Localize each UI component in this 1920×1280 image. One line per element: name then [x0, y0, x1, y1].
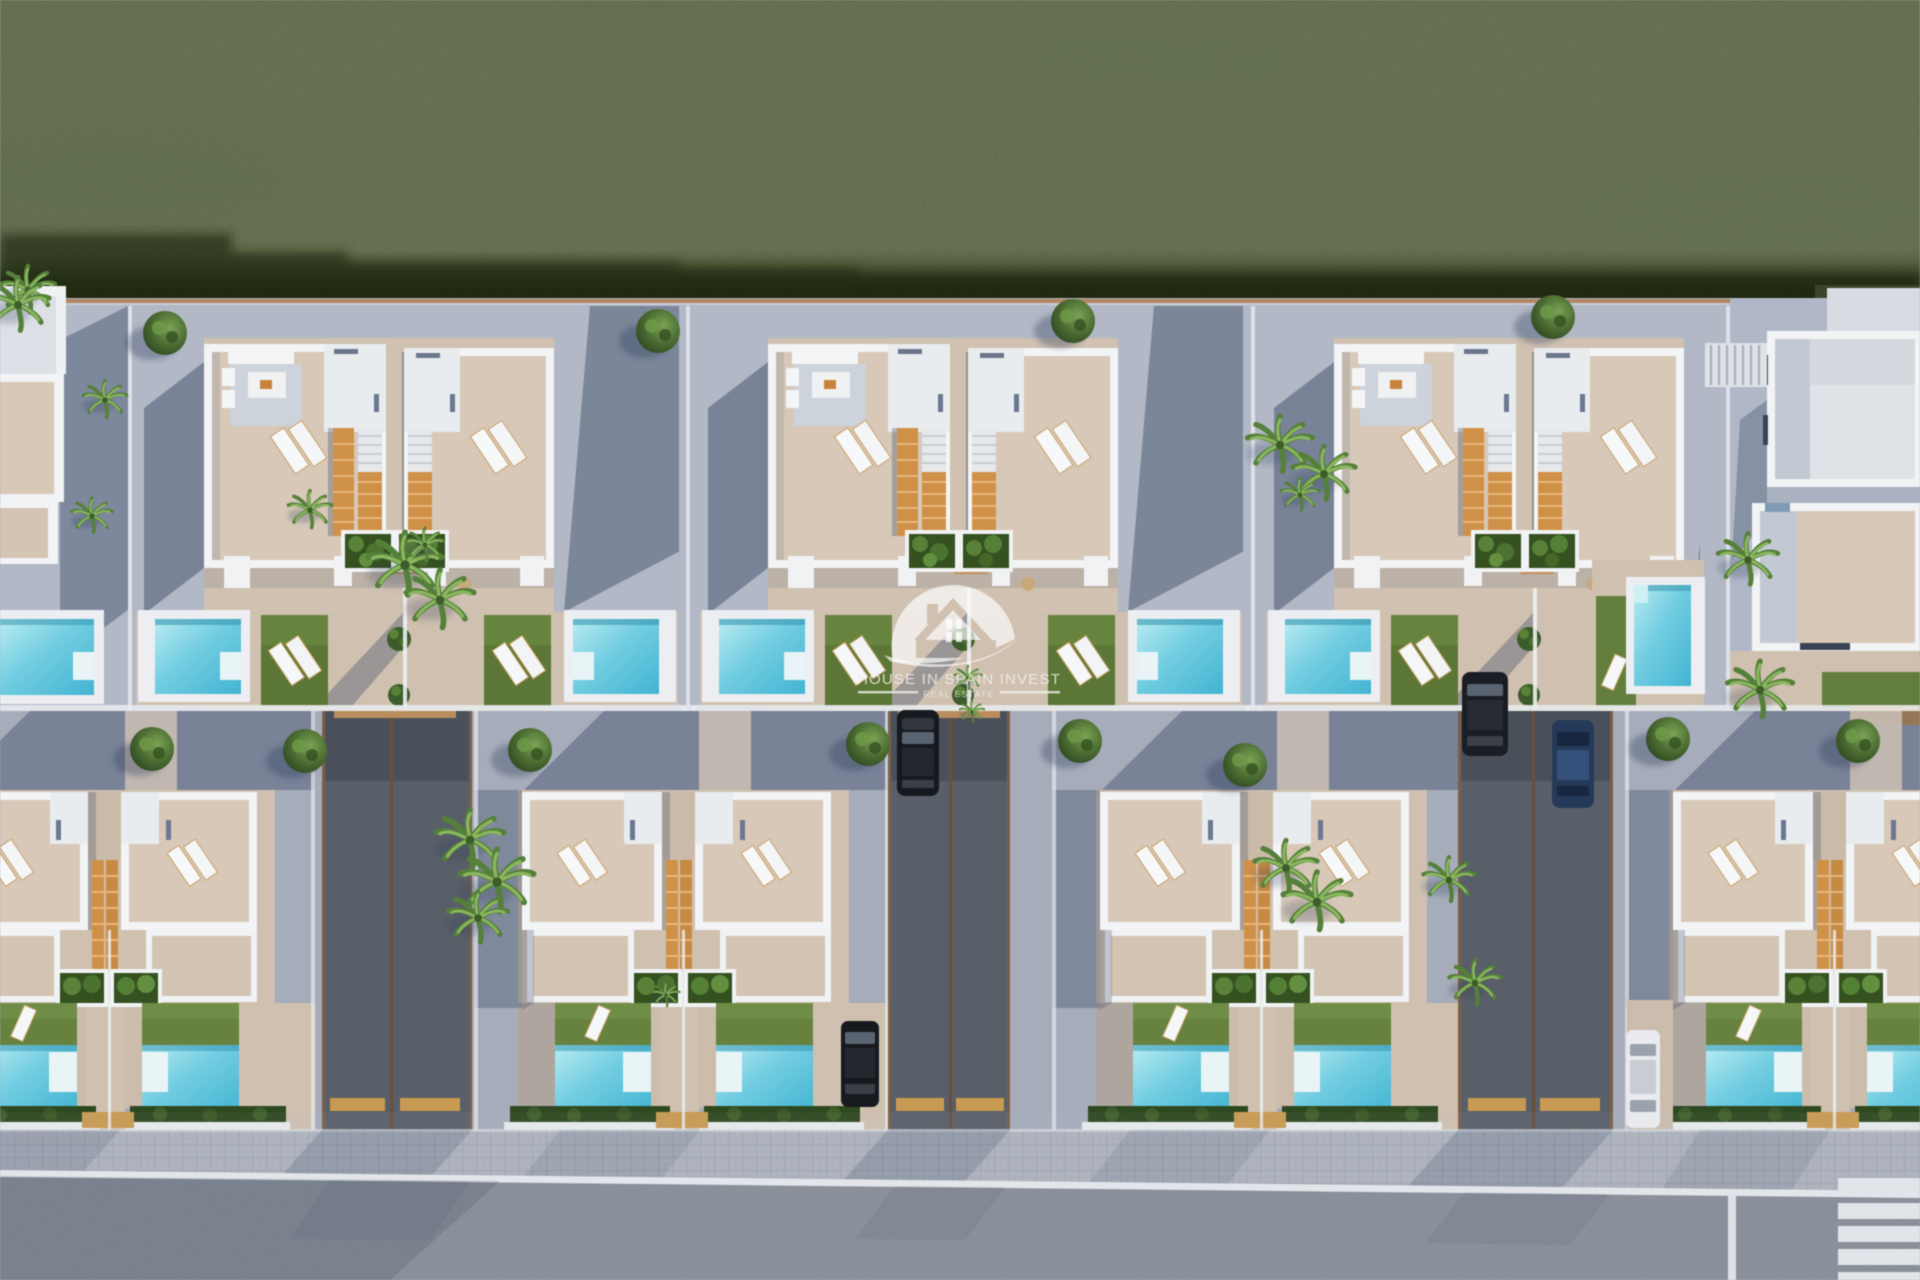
- svg-text:REAL ESTATE: REAL ESTATE: [923, 689, 994, 699]
- svg-text:HOUSE IN SPAIN INVEST: HOUSE IN SPAIN INVEST: [857, 671, 1061, 688]
